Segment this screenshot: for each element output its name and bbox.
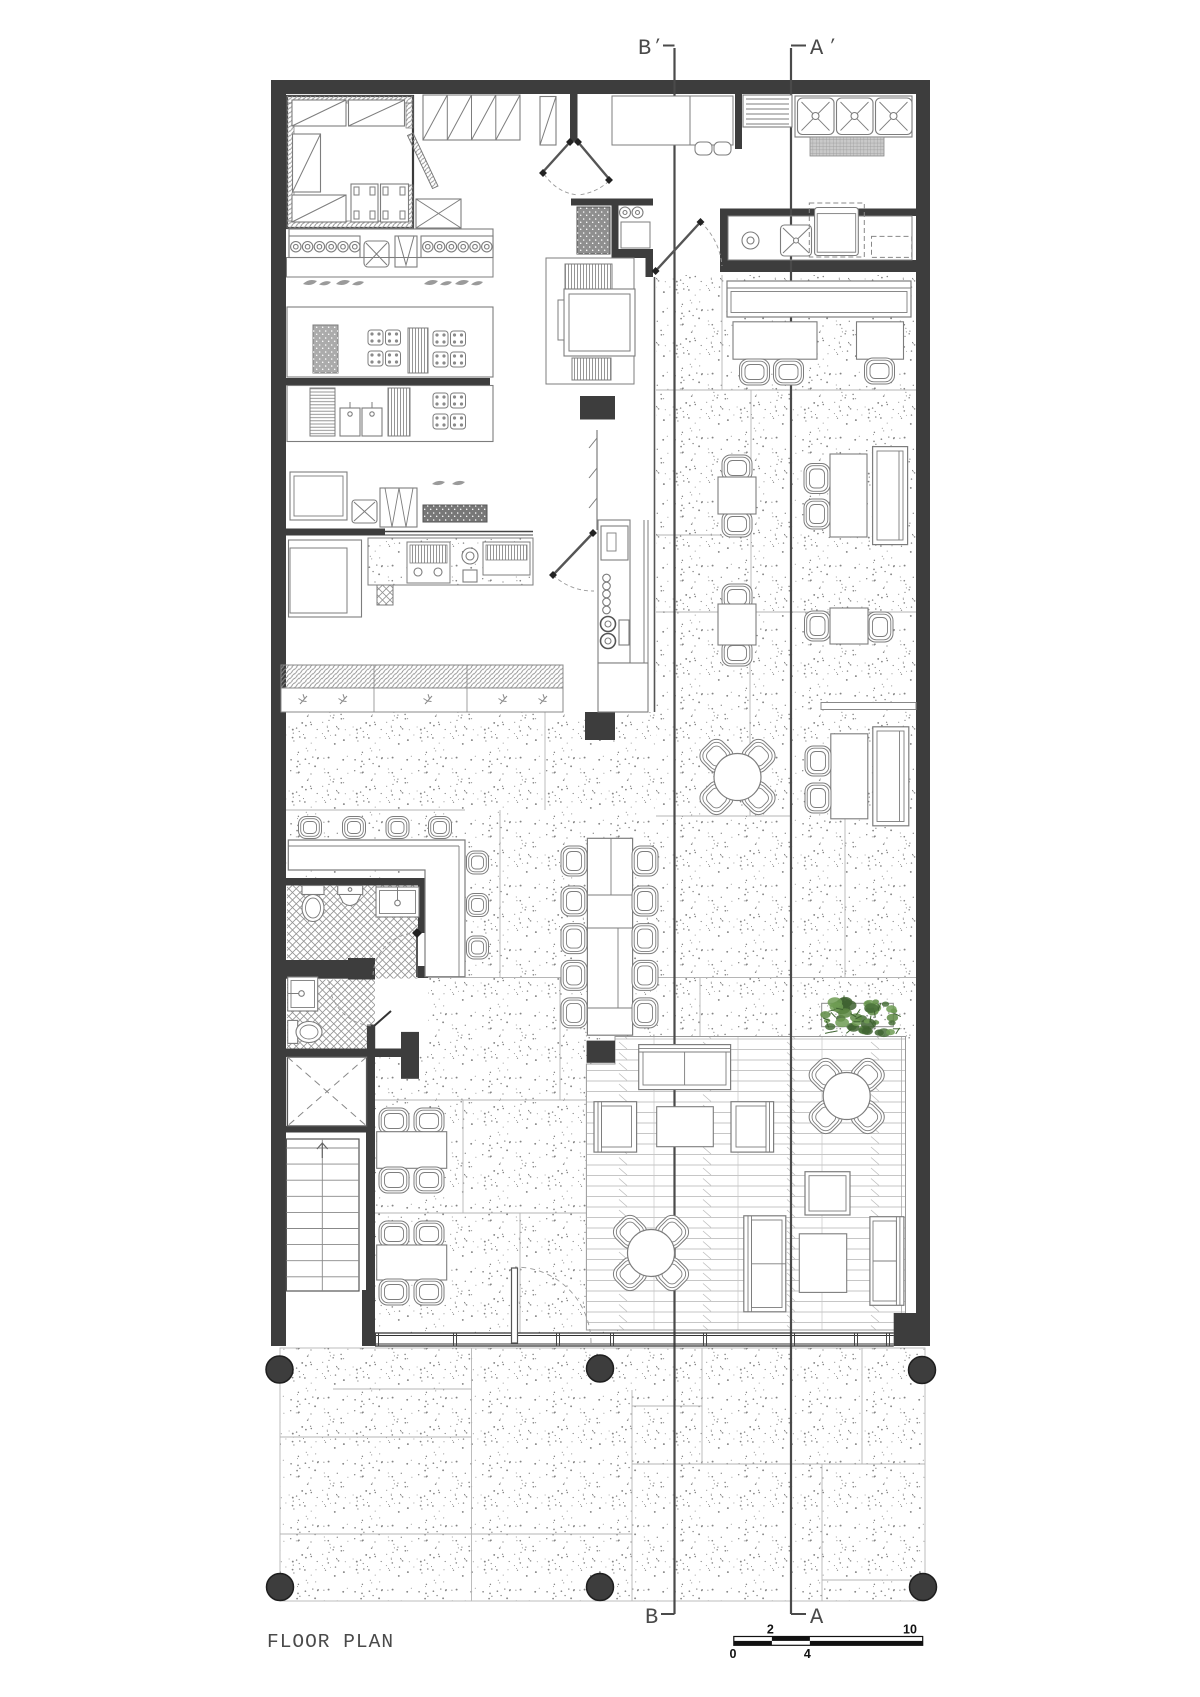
svg-text:B: B — [638, 36, 651, 61]
svg-text:0: 0 — [730, 1647, 737, 1661]
svg-text:10: 10 — [903, 1623, 917, 1637]
svg-text:FLOOR PLAN: FLOOR PLAN — [267, 1631, 394, 1653]
svg-text:A: A — [810, 1605, 824, 1630]
svg-text:’: ’ — [828, 37, 838, 55]
svg-text:4: 4 — [804, 1647, 811, 1661]
svg-text:A: A — [810, 36, 824, 61]
svg-text:2: 2 — [767, 1623, 774, 1637]
svg-text:B: B — [645, 1605, 658, 1630]
svg-text:’: ’ — [653, 37, 663, 55]
